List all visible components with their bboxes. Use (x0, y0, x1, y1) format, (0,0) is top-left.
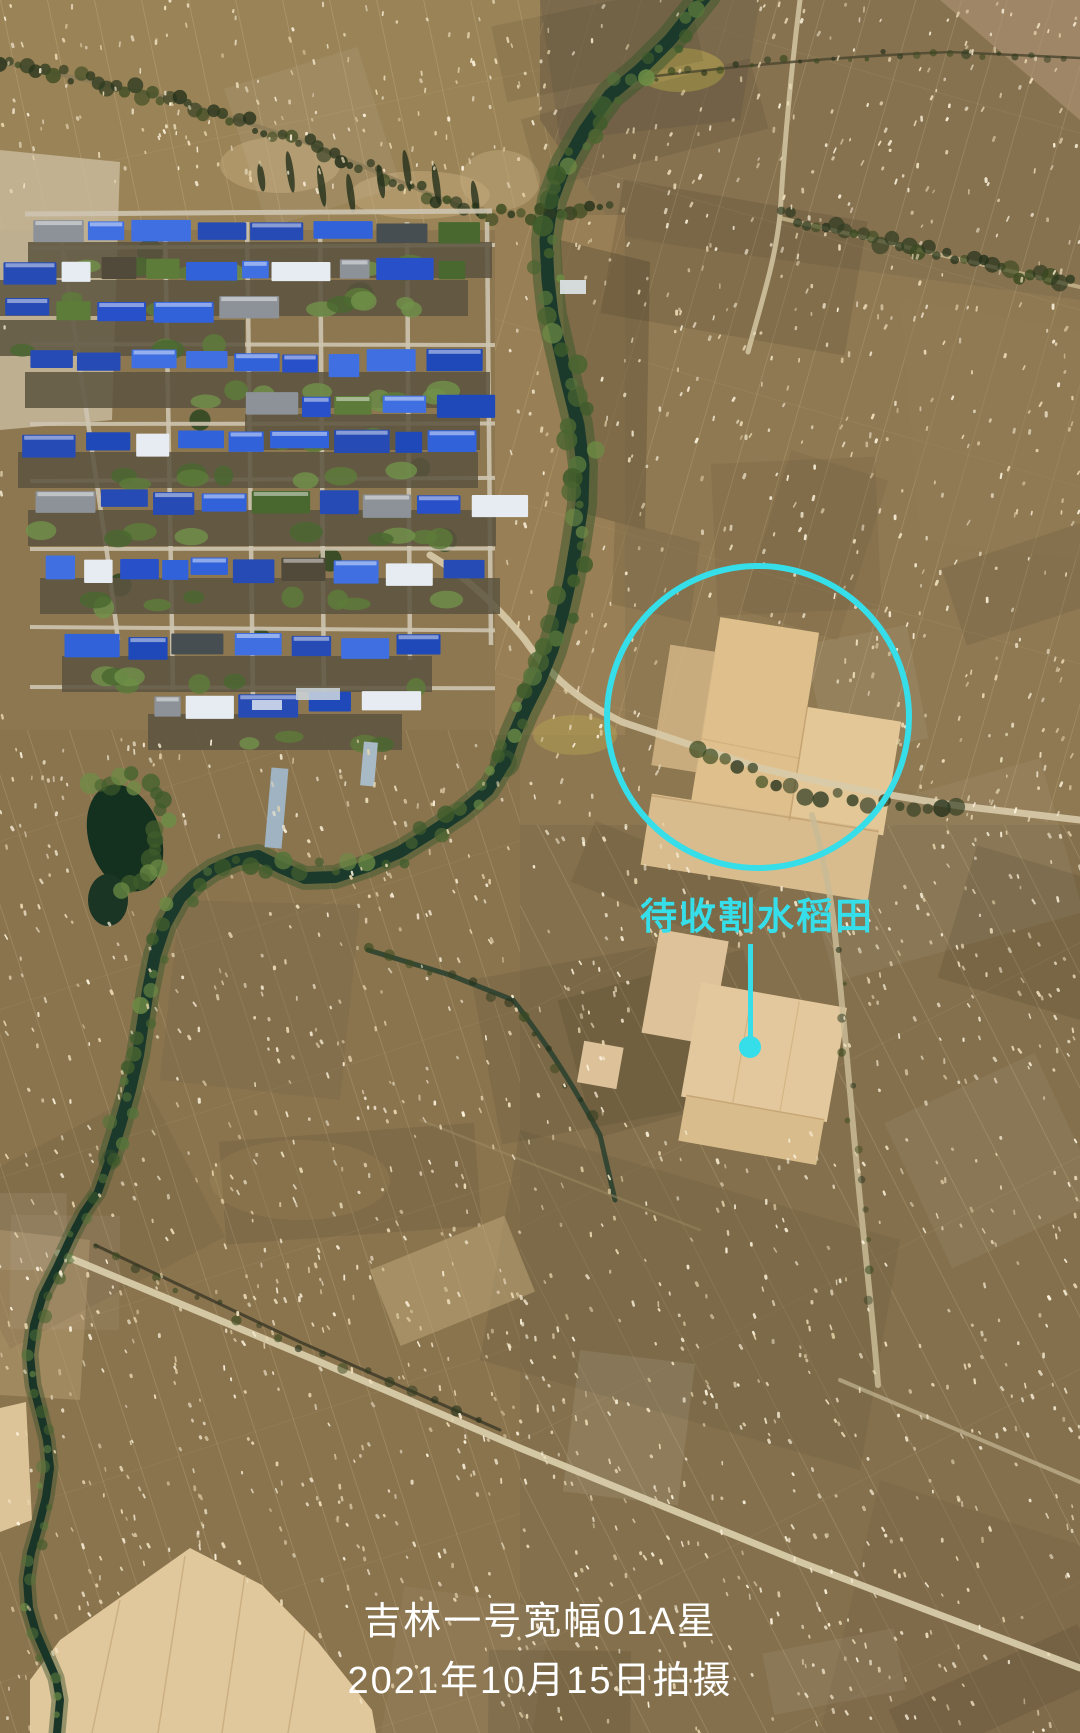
annotation-label: 待收割水稻田 (640, 886, 874, 940)
annotation-pointer-dot (739, 1036, 761, 1058)
terrain-layer (0, 0, 1080, 1733)
caption-capture-date: 2021年10月15日拍摄 (347, 1649, 732, 1704)
caption-satellite-name: 吉林一号宽幅01A星 (363, 1590, 717, 1645)
annotation-pointer-line (748, 944, 753, 1040)
satellite-image: 待收割水稻田 吉林一号宽幅01A星 2021年10月15日拍摄 (0, 0, 1080, 1733)
